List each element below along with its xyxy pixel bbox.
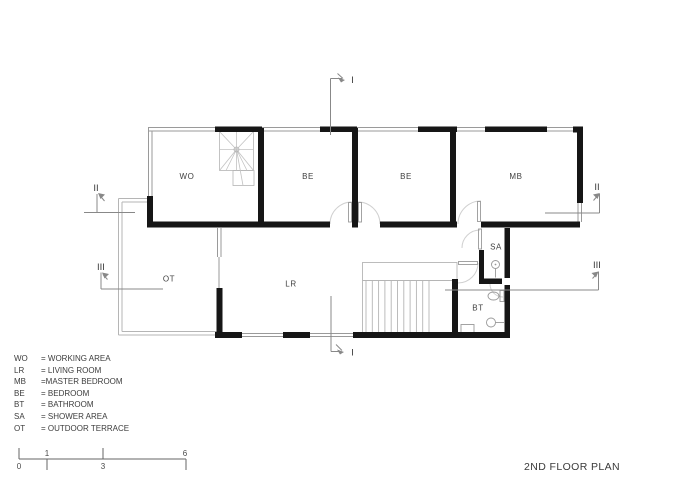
legend-abbr: BE — [14, 388, 41, 400]
section-marker-i-top — [331, 74, 346, 136]
page-title: 2ND FLOOR PLAN — [524, 461, 620, 473]
section-label-ii-left: II — [93, 183, 98, 194]
legend-item: MB=MASTER BEDROOM — [14, 376, 129, 388]
room-label-ot: OT — [163, 275, 175, 284]
counter-box — [461, 325, 474, 333]
section-label-i-bottom: I — [351, 348, 354, 359]
legend-abbr: LR — [14, 365, 41, 377]
legend: WO= WORKING AREA LR= LIVING ROOM MB=MAST… — [14, 353, 129, 434]
legend-desc: = OUTDOOR TERRACE — [41, 423, 129, 435]
legend-item: SA= SHOWER AREA — [14, 411, 129, 423]
walls — [147, 127, 583, 339]
main-stair — [363, 263, 458, 336]
room-label-be1: BE — [302, 172, 314, 181]
legend-abbr: OT — [14, 423, 41, 435]
legend-desc: = SHOWER AREA — [41, 411, 107, 423]
floor-plan-sheet: 0 1 3 6 WO BE BE MB SA BT LR OT I I II I… — [0, 0, 700, 495]
outdoor-terrace-outline — [119, 199, 218, 336]
legend-abbr: SA — [14, 411, 41, 423]
window-lines — [148, 128, 582, 337]
legend-abbr: MB — [14, 376, 41, 388]
room-label-lr: LR — [285, 280, 296, 289]
section-label-iii-right: III — [593, 260, 601, 271]
room-label-bt: BT — [472, 304, 483, 313]
legend-abbr: WO — [14, 353, 41, 365]
room-label-mb: MB — [509, 172, 522, 181]
legend-item: WO= WORKING AREA — [14, 353, 129, 365]
scale-tick-6: 6 — [183, 449, 188, 458]
legend-desc: = BEDROOM — [41, 388, 89, 400]
section-label-ii-right: II — [594, 182, 599, 193]
scale-tick-1: 1 — [45, 449, 50, 458]
section-marker-i-bottom — [331, 296, 344, 355]
legend-desc: =MASTER BEDROOM — [41, 376, 123, 388]
sink-icon — [487, 318, 496, 327]
spiral-stair — [220, 132, 255, 186]
scale-tick-0: 0 — [17, 462, 22, 471]
legend-abbr: BT — [14, 399, 41, 411]
room-label-sa: SA — [490, 243, 502, 252]
legend-desc: = LIVING ROOM — [41, 365, 101, 377]
room-label-wo: WO — [180, 172, 195, 181]
section-marker-iii-left — [101, 273, 163, 290]
room-label-be2: BE — [400, 172, 412, 181]
legend-item: BE= BEDROOM — [14, 388, 129, 400]
section-marker-ii-left — [84, 193, 135, 213]
scale-tick-3: 3 — [101, 462, 106, 471]
section-marker-ii-right — [545, 193, 600, 213]
section-label-i-top: I — [351, 75, 354, 86]
legend-item: LR= LIVING ROOM — [14, 365, 129, 377]
legend-item: OT= OUTDOOR TERRACE — [14, 423, 129, 435]
section-label-iii-left: III — [97, 262, 105, 273]
legend-item: BT= BATHROOM — [14, 399, 129, 411]
legend-desc: = BATHROOM — [41, 399, 94, 411]
legend-desc: = WORKING AREA — [41, 353, 111, 365]
